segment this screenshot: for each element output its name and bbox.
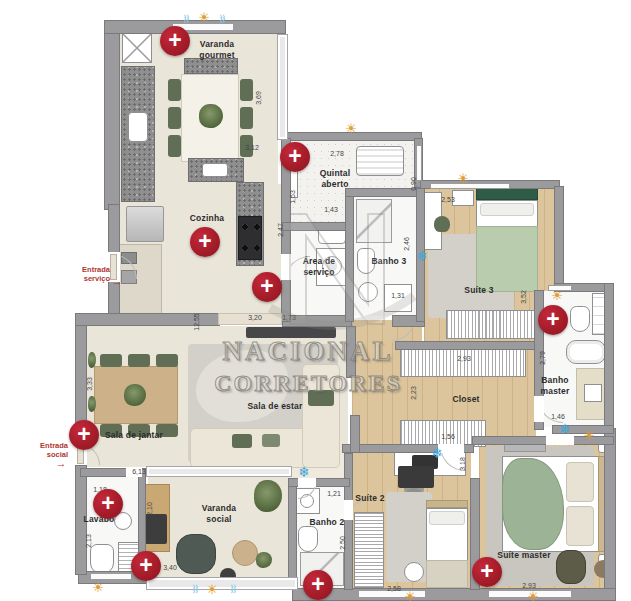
round-table <box>404 562 424 582</box>
poi-marker-banho2[interactable]: + <box>303 570 333 600</box>
dimension-label: 0,90 <box>410 177 417 191</box>
chair <box>168 135 181 157</box>
poi-marker-sala-jantar[interactable]: + <box>69 420 99 450</box>
dimension-label: 2,93 <box>457 355 471 362</box>
chair <box>100 354 122 367</box>
kitchen-sink <box>202 163 228 177</box>
dimension-label: 3,20 <box>248 314 262 321</box>
room-label-suite2: Suíte 2 <box>355 493 384 504</box>
bathtub <box>566 340 606 364</box>
sun-icon: ☀ <box>404 590 416 601</box>
room-label-banho-master: Banho master <box>540 375 569 397</box>
room-label-banho2: Banho 2 <box>310 517 345 528</box>
chair <box>240 107 253 129</box>
wall-segment <box>288 478 297 590</box>
dimension-label: 3,69 <box>255 91 262 105</box>
basket <box>556 550 586 584</box>
poi-marker-lavabo[interactable]: + <box>93 489 123 519</box>
dimension-label: 6,13 <box>132 468 146 475</box>
wall-segment <box>604 428 616 601</box>
window-glass <box>277 34 288 140</box>
wall-segment <box>350 415 360 453</box>
floorplan-canvas: 3,69 3,12 2,78 1,53 0,90 1,43 2,53 2,47 … <box>0 0 631 601</box>
room-label-sala-jantar: Sala de jantar <box>105 430 163 441</box>
plus-icon: + <box>546 308 559 331</box>
toilet <box>90 544 114 574</box>
balcony-rail <box>146 577 298 590</box>
sun-icon: ☀ <box>206 583 218 596</box>
plus-icon: + <box>480 560 493 583</box>
dimension-label: 12,55 <box>193 313 200 331</box>
sofa-cushion <box>262 434 280 447</box>
window <box>416 145 422 181</box>
shaft-box <box>122 33 152 63</box>
toilet <box>570 306 590 332</box>
dimension-label: 1,21 <box>327 490 341 497</box>
arrow-icon: → <box>56 457 67 469</box>
snowflake-icon: ❄ <box>298 465 310 479</box>
chair <box>128 354 150 367</box>
dimension-label: 2,79 <box>539 351 546 365</box>
watermark-line2: CORRETORES <box>214 370 402 397</box>
wall-segment <box>344 453 353 590</box>
bar-appliance <box>145 514 167 544</box>
door-opening <box>534 396 544 422</box>
table-plant <box>124 384 146 406</box>
snowflake-icon: ❄ <box>416 249 428 263</box>
poi-marker-varanda-gourmet[interactable]: + <box>160 26 190 56</box>
counter-sink <box>128 112 148 142</box>
dimension-label: 1,46 <box>551 413 565 420</box>
wardrobe <box>354 512 384 588</box>
dimension-label: 2,23 <box>410 386 417 400</box>
plus-icon: + <box>168 29 181 52</box>
room-label-varanda-social: Varanda social <box>202 503 236 525</box>
vent-icon: ♒ <box>216 14 228 25</box>
sun-icon: ☀ <box>457 172 469 185</box>
bed-blanket <box>426 560 468 588</box>
chair <box>168 107 181 129</box>
dimension-label: 2,10 <box>146 502 153 516</box>
room-label-suite3: Suíte 3 <box>464 285 493 296</box>
room-label-suite-master: Suíte master <box>497 550 550 561</box>
bed-pillow <box>566 506 594 546</box>
vent-icon: ♒ <box>180 14 192 25</box>
dimension-label: 3,52 <box>520 290 527 304</box>
poi-marker-varanda-social[interactable]: + <box>131 551 161 581</box>
bed-pillows <box>480 203 534 216</box>
dimension-label: 2,58 <box>387 585 401 592</box>
sun-icon: ☀ <box>527 590 539 601</box>
dimension-label: 3,33 <box>86 377 93 391</box>
watermark-line1: NACIONAL <box>222 336 393 367</box>
cooktop <box>238 216 262 260</box>
dimension-label: 2,50 <box>339 536 346 550</box>
wall-segment <box>554 186 564 286</box>
plus-icon: + <box>260 275 273 298</box>
window <box>430 183 510 189</box>
sofa-cushion <box>232 434 252 448</box>
dimension-label: 2,53 <box>441 196 455 203</box>
snowflake-icon: ❄ <box>431 446 443 460</box>
sun-icon: ☀ <box>345 122 357 135</box>
desk <box>398 466 434 488</box>
poi-marker-cozinha[interactable]: + <box>190 227 220 257</box>
plus-icon: + <box>288 145 301 168</box>
dimension-label: 2,13 <box>85 534 92 548</box>
bed-headboard <box>476 188 538 200</box>
sun-icon: ☀ <box>551 289 563 302</box>
dimension-label: 3,40 <box>163 564 177 571</box>
dimension-label: 1,56 <box>441 433 455 440</box>
bed-pillow <box>566 462 594 502</box>
chair <box>168 79 181 101</box>
fridge <box>126 206 164 242</box>
room-label-quintal-aberto: Quintal aberto <box>320 168 351 190</box>
vanity-sink <box>584 384 602 402</box>
poi-marker-banho-master[interactable]: + <box>538 305 568 335</box>
wall-segment <box>104 20 120 210</box>
dimension-label: 3,18 <box>459 457 466 471</box>
room-label-varanda-gourmet: Varanda gourmet <box>199 39 234 61</box>
armchair <box>176 534 216 574</box>
window-glass <box>146 466 292 477</box>
snowflake-icon: ❄ <box>559 422 571 436</box>
plus-icon: + <box>198 230 211 253</box>
watermark-monogram <box>262 196 422 348</box>
plus-icon: + <box>77 423 90 446</box>
poi-marker-area-servico[interactable]: + <box>252 272 282 302</box>
poi-marker-quintal-aberto[interactable]: + <box>280 142 310 172</box>
room-label-sala-estar: Sala de estar <box>247 401 302 412</box>
room-label-closet: Closet <box>452 394 479 405</box>
plus-icon: + <box>101 492 114 515</box>
sun-icon: ☀ <box>583 429 595 442</box>
pouf <box>232 540 258 566</box>
entrance-service-label: Entrada serviço <box>62 265 110 284</box>
wardrobe <box>446 310 536 339</box>
dimension-label: 3,12 <box>245 144 259 151</box>
plus-icon: + <box>311 573 324 596</box>
vent-icon: ♒ <box>189 584 201 595</box>
door-opening <box>546 436 574 445</box>
desk-chair <box>434 216 450 232</box>
toilet <box>298 526 318 552</box>
plus-icon: + <box>139 554 152 577</box>
bed-duvet <box>476 226 538 292</box>
wardrobe <box>400 348 526 377</box>
bed-pillows <box>429 511 465 525</box>
vent-icon: ♒ <box>227 584 239 595</box>
chair <box>240 79 253 101</box>
door-opening <box>344 500 353 520</box>
nightstand <box>452 190 474 206</box>
wall-segment <box>604 283 614 433</box>
dimension-label: 2,78 <box>330 150 344 157</box>
ac-condenser <box>356 146 404 176</box>
sun-icon: ☀ <box>92 581 104 594</box>
chair <box>156 354 178 367</box>
sun-icon: ☀ <box>198 11 210 24</box>
bed-headboard <box>426 500 468 508</box>
arrow-icon: → <box>112 275 123 287</box>
poi-marker-suite-master[interactable]: + <box>472 557 502 587</box>
dimension-label: 2,93 <box>522 582 536 589</box>
room-label-cozinha: Cozinha <box>190 213 224 224</box>
